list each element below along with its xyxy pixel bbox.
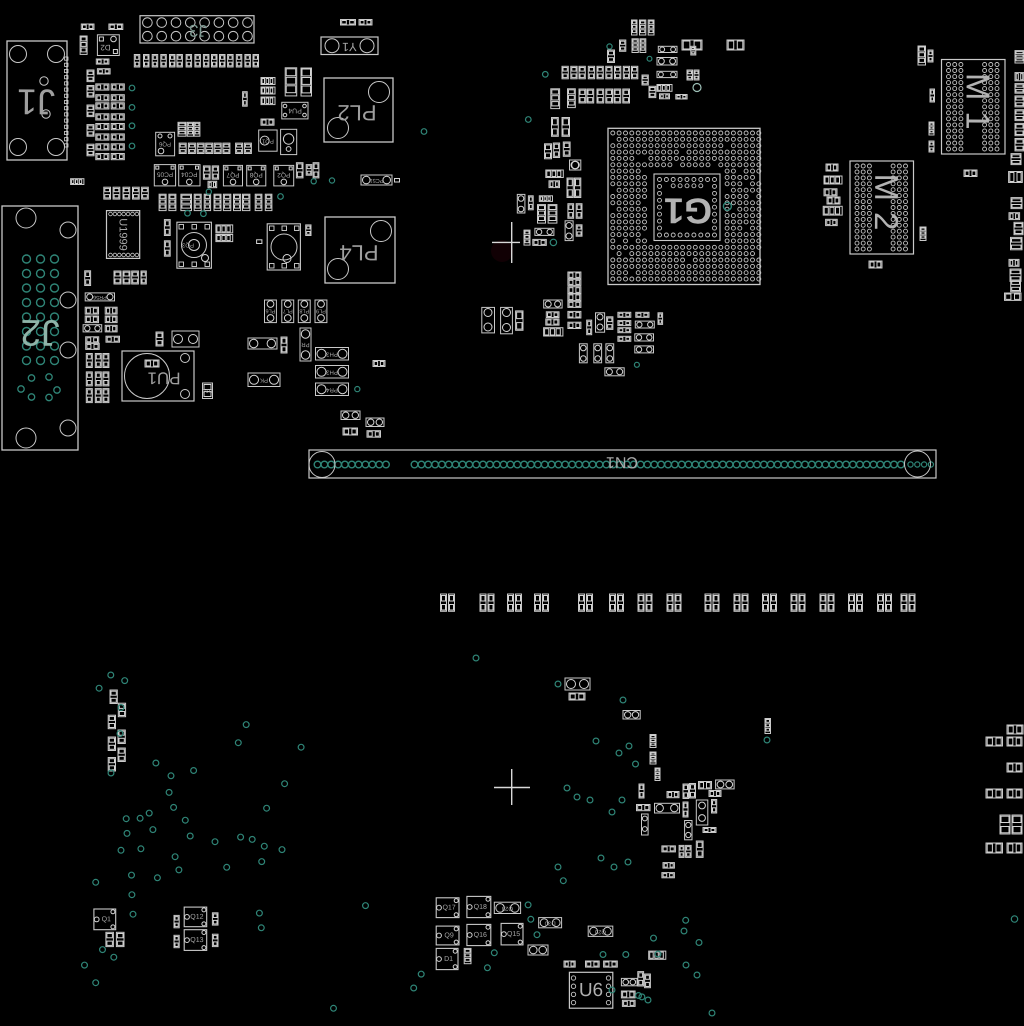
svg-text:G1: G1 <box>664 190 712 231</box>
svg-text:M2: M2 <box>868 173 905 241</box>
svg-text:Q12: Q12 <box>190 914 203 921</box>
svg-text:PQ1: PQ1 <box>261 137 274 143</box>
svg-text:Q15: Q15 <box>507 931 520 938</box>
svg-text:Q1: Q1 <box>102 916 111 923</box>
svg-text:Q23: Q23 <box>501 905 513 911</box>
svg-text:CN1: CN1 <box>606 453 638 470</box>
svg-text:PQ6: PQ6 <box>158 140 171 146</box>
svg-text:Q20: Q20 <box>594 928 606 934</box>
svg-text:B26: B26 <box>203 387 213 393</box>
svg-text:PQ2: PQ2 <box>277 171 290 178</box>
svg-text:PQ8: PQ8 <box>249 171 262 178</box>
svg-text:PQ7: PQ7 <box>226 171 239 178</box>
svg-text:Q9: Q9 <box>444 932 453 939</box>
svg-text:PC04: PC04 <box>181 170 198 177</box>
svg-text:PL6: PL6 <box>266 308 276 314</box>
svg-text:J2: J2 <box>20 312 59 353</box>
svg-text:PL8: PL8 <box>299 308 309 314</box>
svg-text:PC05: PC05 <box>156 170 173 177</box>
svg-text:PU1: PU1 <box>147 368 180 387</box>
svg-text:PR56: PR56 <box>93 294 107 300</box>
svg-text:Q16: Q16 <box>474 932 487 939</box>
svg-text:D2: D2 <box>100 43 111 52</box>
svg-text:PC51: PC51 <box>370 177 384 183</box>
svg-text:PQ3: PQ3 <box>181 241 194 247</box>
svg-text:PL4: PL4 <box>339 240 378 265</box>
svg-text:PL9: PL9 <box>316 308 326 314</box>
svg-text:PL7: PL7 <box>283 308 293 314</box>
svg-text:D1: D1 <box>444 956 453 963</box>
svg-text:U6: U6 <box>579 980 603 1001</box>
svg-text:Q13: Q13 <box>190 937 203 944</box>
svg-text:PR: PR <box>301 341 310 347</box>
svg-text:Q17: Q17 <box>442 905 455 912</box>
svg-text:PK: PK <box>260 377 268 383</box>
svg-text:PL2: PL2 <box>337 100 376 125</box>
svg-text:PH3: PH3 <box>325 351 337 357</box>
svg-text:PH3: PH3 <box>325 369 337 375</box>
svg-text:D30: D30 <box>544 920 556 926</box>
svg-text:PR4: PR4 <box>325 386 337 392</box>
svg-text:U1999: U1999 <box>117 218 129 250</box>
svg-text:PU4: PU4 <box>288 107 302 114</box>
svg-text:Q18: Q18 <box>474 904 487 911</box>
svg-text:Y1: Y1 <box>342 40 357 54</box>
svg-text:J3: J3 <box>189 21 207 40</box>
svg-text:M1: M1 <box>959 73 996 141</box>
svg-text:J1: J1 <box>17 81 55 122</box>
